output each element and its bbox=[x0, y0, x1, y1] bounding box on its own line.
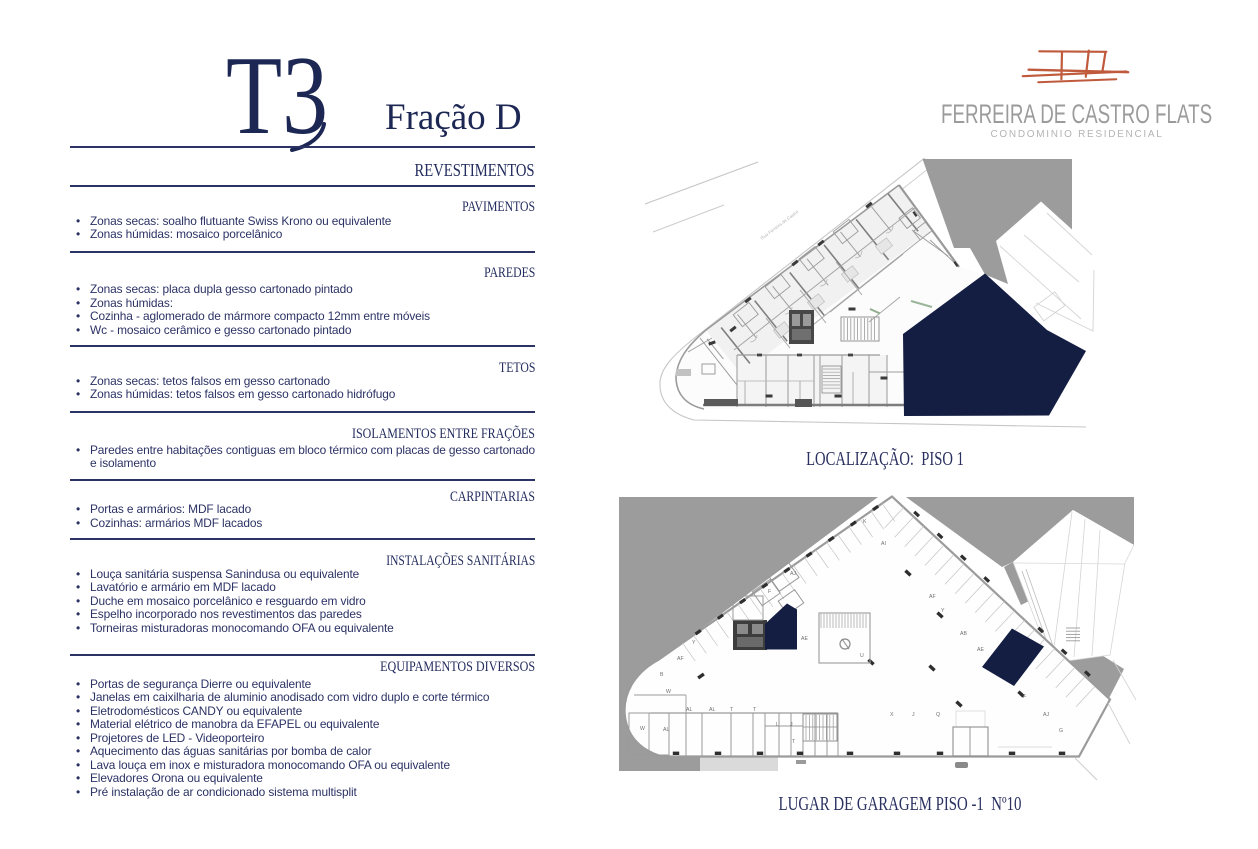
svg-text:W: W bbox=[640, 726, 645, 732]
svg-text:AI: AI bbox=[881, 541, 886, 547]
svg-text:F: F bbox=[768, 589, 771, 595]
svg-text:K: K bbox=[863, 519, 867, 525]
svg-text:Y: Y bbox=[941, 608, 945, 614]
svg-text:J: J bbox=[790, 722, 793, 728]
svg-text:B: B bbox=[660, 672, 664, 678]
svg-text:AL: AL bbox=[709, 707, 715, 713]
svg-text:AJ: AJ bbox=[1043, 712, 1049, 718]
svg-text:AB: AB bbox=[960, 631, 967, 637]
svg-text:AF: AF bbox=[929, 594, 936, 600]
svg-text:Y: Y bbox=[692, 640, 696, 646]
svg-text:AL: AL bbox=[686, 707, 692, 713]
svg-text:Q: Q bbox=[936, 712, 940, 718]
svg-text:G: G bbox=[1059, 728, 1063, 734]
svg-text:J: J bbox=[912, 712, 915, 718]
svg-text:Rua Ferreira de Castro: Rua Ferreira de Castro bbox=[760, 209, 800, 241]
svg-text:AE: AE bbox=[801, 636, 808, 642]
svg-text:AJ: AJ bbox=[790, 571, 796, 577]
svg-text:AF: AF bbox=[677, 656, 684, 662]
svg-text:U: U bbox=[860, 653, 864, 659]
svg-text:F: F bbox=[1023, 694, 1026, 700]
svg-text:AE: AE bbox=[977, 647, 984, 653]
svg-text:L: L bbox=[776, 722, 779, 728]
svg-text:X: X bbox=[890, 712, 894, 718]
svg-text:W: W bbox=[666, 689, 671, 695]
svg-text:AL: AL bbox=[663, 727, 669, 733]
